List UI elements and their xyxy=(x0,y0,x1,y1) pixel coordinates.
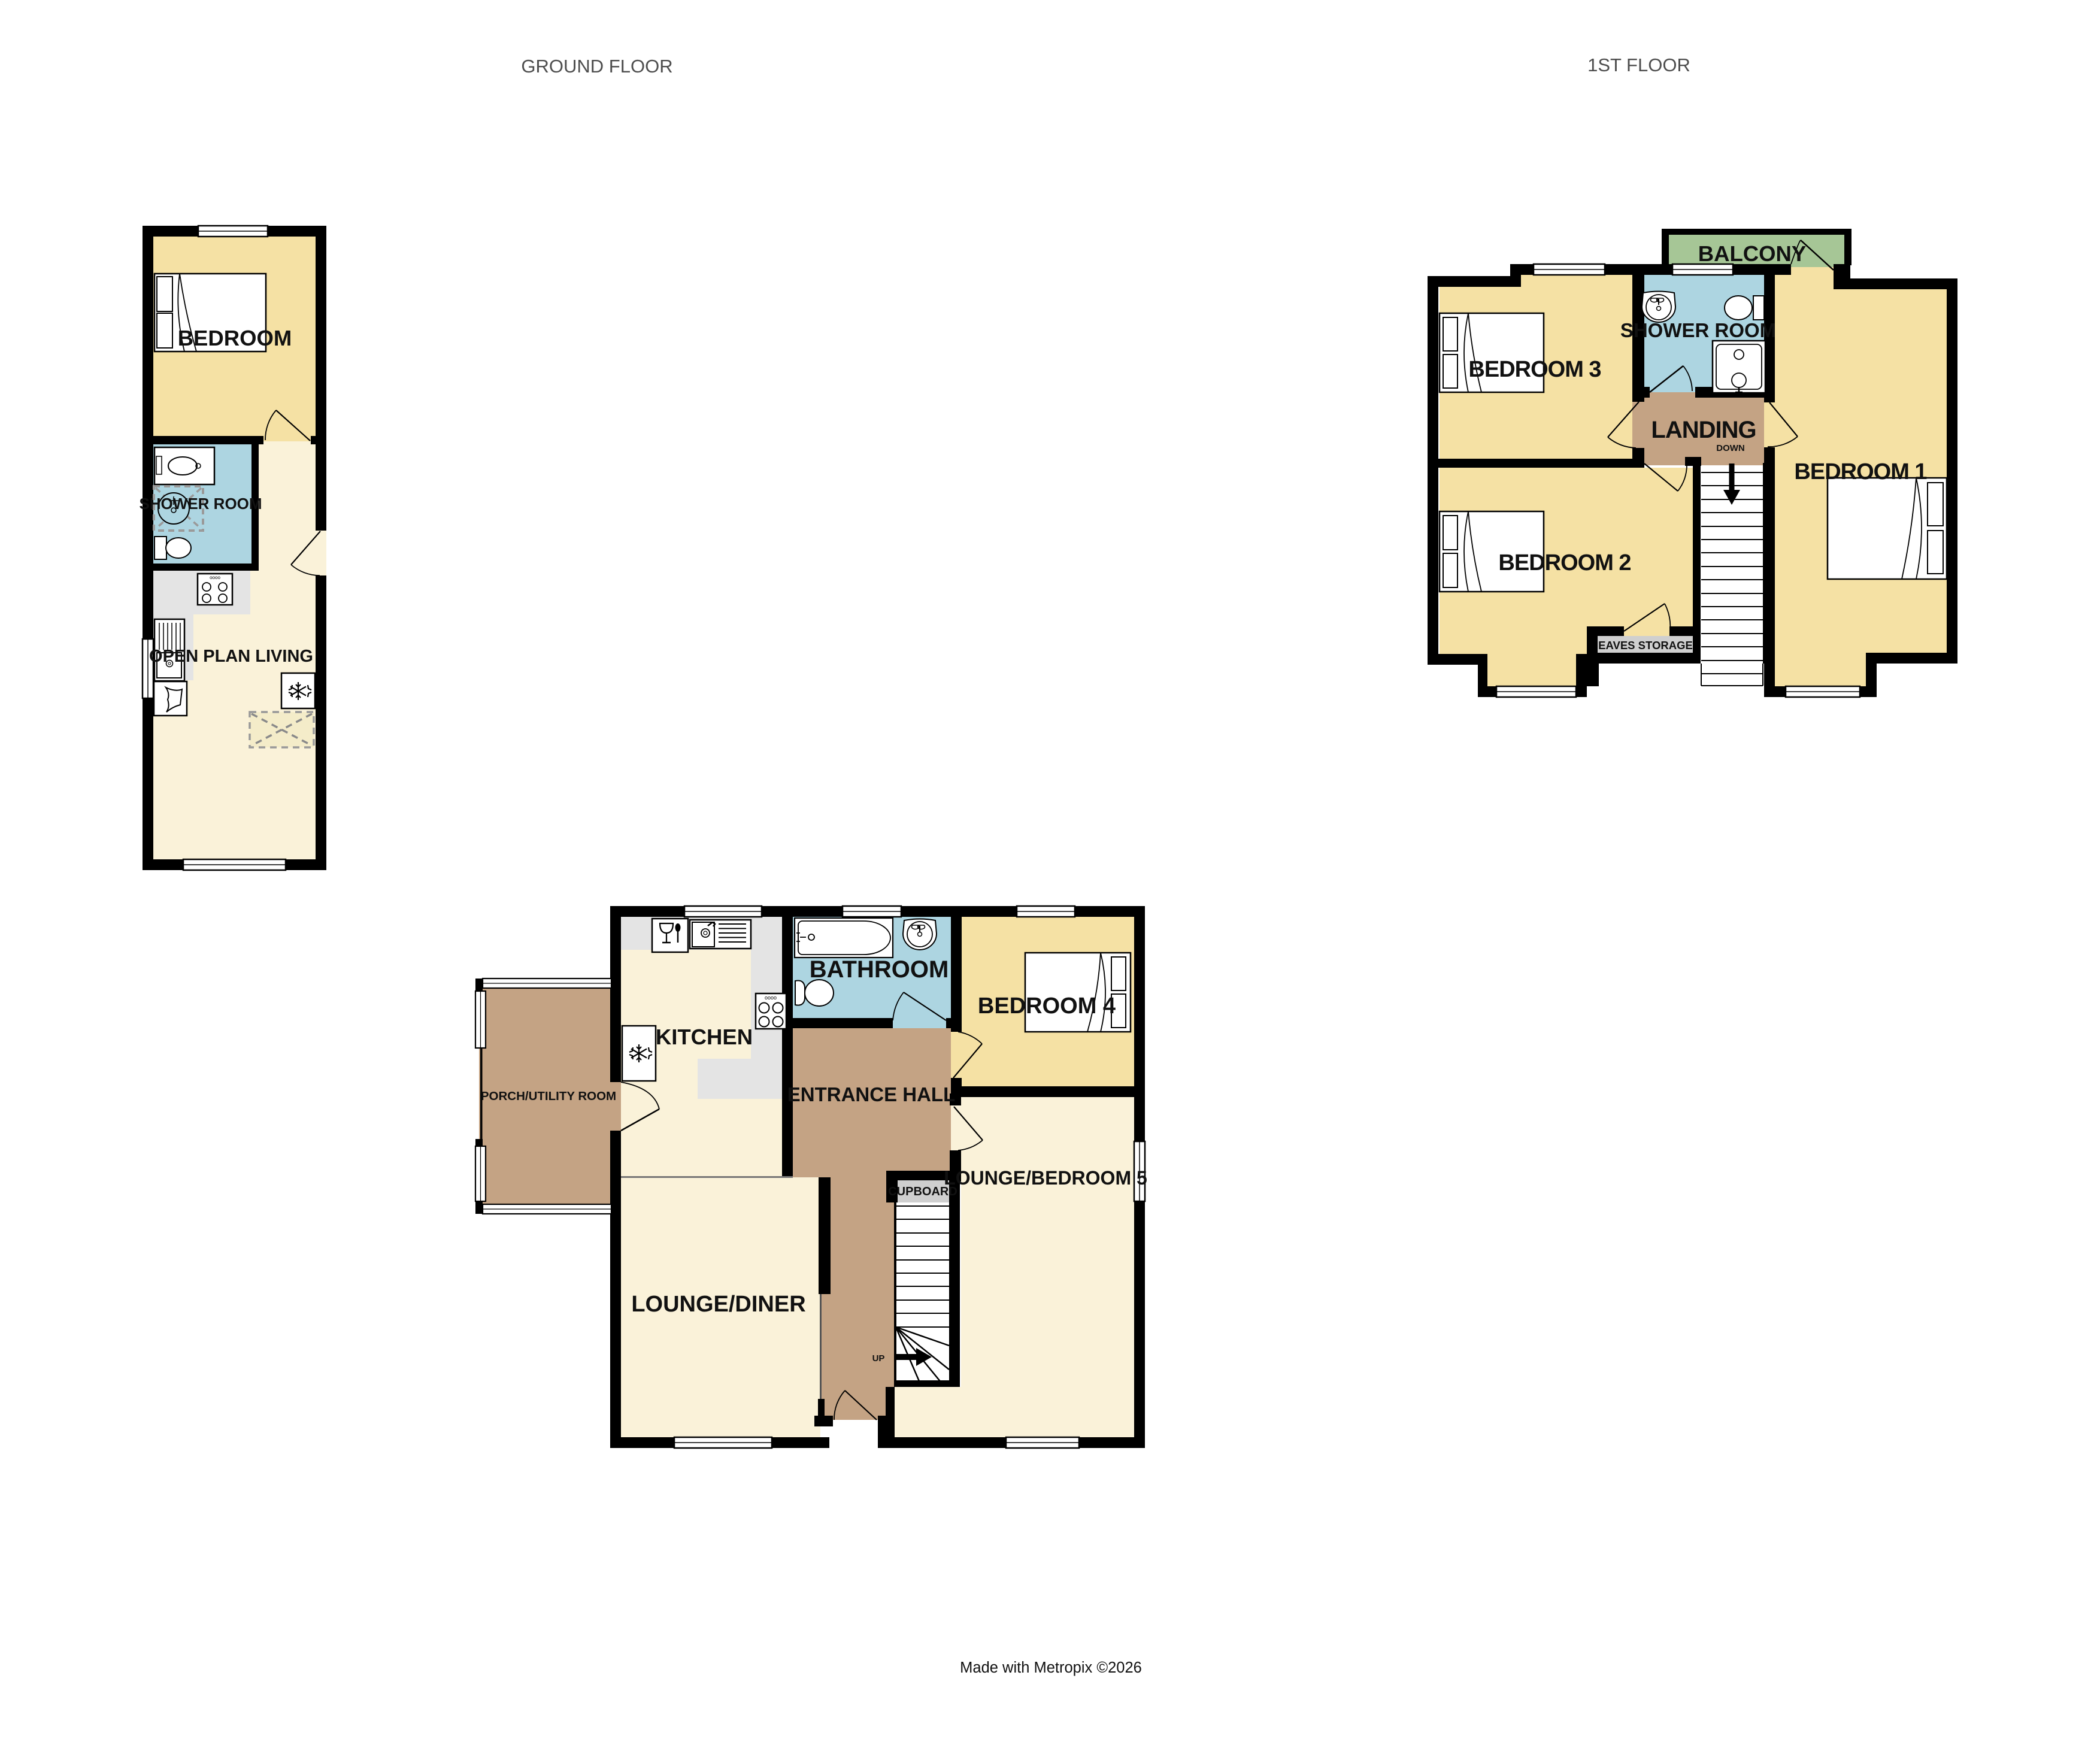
svg-text:DOWN: DOWN xyxy=(1716,443,1745,453)
svg-text:BATHROOM: BATHROOM xyxy=(810,956,949,983)
svg-text:OPEN PLAN LIVING: OPEN PLAN LIVING xyxy=(149,647,313,666)
svg-text:oooo: oooo xyxy=(765,995,777,1001)
svg-text:BEDROOM 3: BEDROOM 3 xyxy=(1468,357,1601,382)
svg-text:SHOWER ROOM: SHOWER ROOM xyxy=(139,495,262,513)
svg-text:ENTRANCE HALL: ENTRANCE HALL xyxy=(787,1083,955,1105)
svg-text:BEDROOM 2: BEDROOM 2 xyxy=(1498,550,1631,575)
svg-text:BEDROOM 4: BEDROOM 4 xyxy=(978,993,1116,1019)
svg-text:CUPBOARD: CUPBOARD xyxy=(888,1185,957,1198)
svg-text:oooo: oooo xyxy=(210,575,220,580)
svg-text:BALCONY: BALCONY xyxy=(1698,241,1806,266)
svg-text:LOUNGE/BEDROOM 5: LOUNGE/BEDROOM 5 xyxy=(944,1167,1147,1189)
svg-text:GROUND FLOOR: GROUND FLOOR xyxy=(521,56,672,77)
svg-text:EAVES STORAGE: EAVES STORAGE xyxy=(1598,639,1693,652)
svg-text:UP: UP xyxy=(872,1353,885,1364)
svg-text:LOUNGE/DINER: LOUNGE/DINER xyxy=(631,1292,805,1317)
svg-text:BEDROOM: BEDROOM xyxy=(178,326,292,350)
svg-text:BEDROOM 1: BEDROOM 1 xyxy=(1794,459,1927,484)
svg-text:LANDING: LANDING xyxy=(1651,417,1756,443)
svg-text:PORCH/UTILITY ROOM: PORCH/UTILITY ROOM xyxy=(481,1089,616,1103)
svg-text:Made with Metropix ©2026: Made with Metropix ©2026 xyxy=(960,1659,1142,1676)
svg-text:KITCHEN: KITCHEN xyxy=(656,1025,753,1049)
svg-text:SHOWER ROOM: SHOWER ROOM xyxy=(1620,319,1776,341)
svg-text:1ST FLOOR: 1ST FLOOR xyxy=(1587,54,1690,75)
